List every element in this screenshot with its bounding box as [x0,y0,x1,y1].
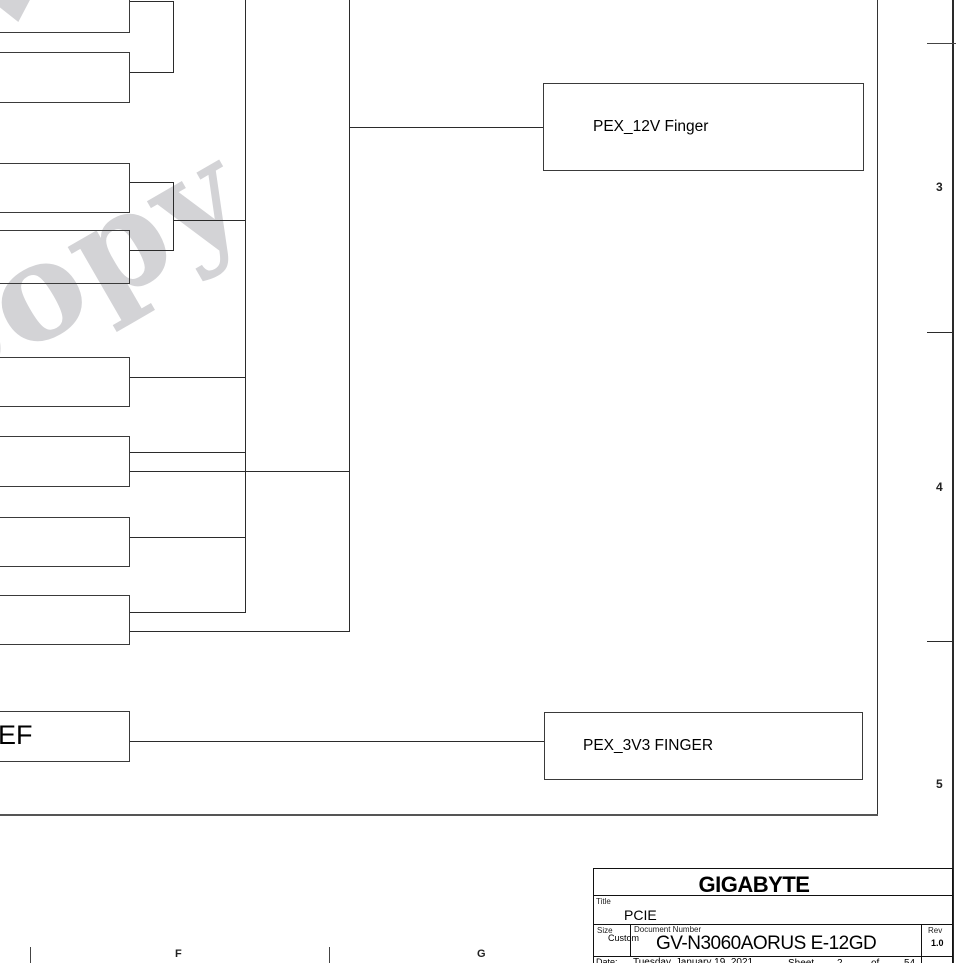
title-label: Title [596,897,611,906]
zone-tick [927,332,954,333]
connector-line [173,220,246,221]
net-block [0,436,130,487]
connector-line [130,537,246,538]
sheet-label: Sheet [788,958,814,963]
title-value: PCIE [624,907,657,923]
net-block [0,52,130,103]
net-block [0,357,130,407]
net-block [0,595,130,645]
connector-line [130,1,174,2]
bus-trunk-line [245,0,246,613]
rev-value: 1.0 [931,938,944,948]
title-block-divider [921,924,922,963]
pex-12v-finger-block: PEX_12V Finger [543,83,864,171]
connector-line [130,250,174,251]
zone-number-3: 3 [936,180,943,194]
schematic-page: Copy EF [0,0,964,963]
date-label: Date: [596,957,618,963]
pex-3v3-finger-label: PEX_3V3 FINGER [545,737,713,755]
bus-trunk-line [349,0,350,632]
connector-line [130,377,246,378]
connector-line [130,631,350,632]
zone-tick [927,641,954,642]
sheet-number: 2 [837,958,843,963]
sheet-inner-border-bottom [0,814,878,816]
zone-letter-f: F [175,948,182,960]
connector-line [130,72,174,73]
zone-number-4: 4 [936,480,943,494]
ef-port-block: EF [0,711,130,762]
of-label: of [871,958,879,963]
pex-12v-finger-label: PEX_12V Finger [544,118,708,136]
company-name: GIGABYTE [654,872,854,898]
date-value: Tuesday, January 19, 2021 [633,957,753,963]
rev-label: Rev [928,926,942,935]
connector-line [130,182,174,183]
sheet-inner-border-right [877,0,878,815]
zone-letter-g: G [477,948,486,960]
size-value: Custom [608,933,639,943]
connector-line [130,741,544,742]
connector-line [130,612,246,613]
title-block: GIGABYTE Title PCIE Size Custom Document… [593,868,953,963]
zone-number-5: 5 [936,777,943,791]
sheet-outer-border-right [952,0,954,963]
ef-port-label: EF [0,720,33,751]
net-block [0,0,130,33]
pex-3v3-finger-block: PEX_3V3 FINGER [544,712,863,780]
connector-line [173,182,174,251]
zone-tick [927,43,956,44]
net-block [0,230,130,284]
zone-tick [30,947,31,963]
net-block [0,163,130,213]
connector-line [130,452,246,453]
zone-tick [329,947,330,963]
doc-number-value: GV-N3060AORUS E-12GD [656,933,876,955]
net-block [0,517,130,567]
connector-line [130,471,350,472]
connector-line [349,127,543,128]
connector-line [173,1,174,73]
sheet-total: 54 [904,958,915,963]
